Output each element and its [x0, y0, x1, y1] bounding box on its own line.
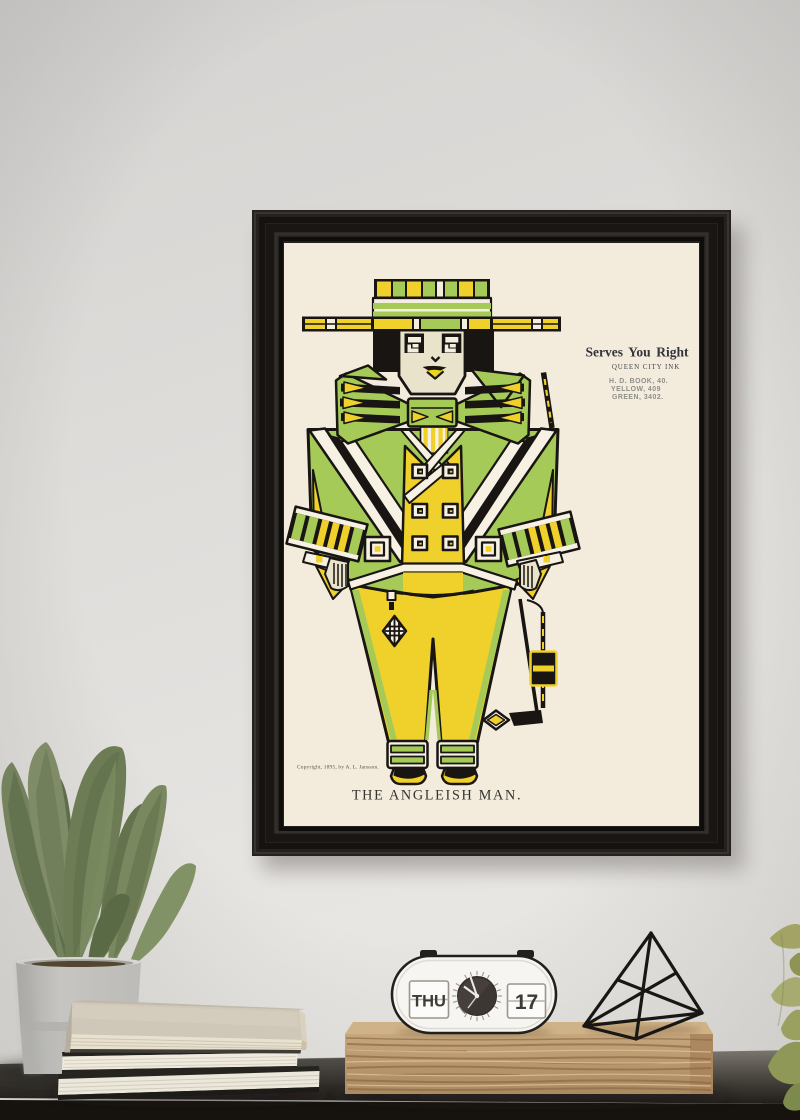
svg-text:H. D. BOOK, 40.: H. D. BOOK, 40. — [609, 378, 668, 385]
svg-text:Copyright, 1895, by A. L. Jans: Copyright, 1895, by A. L. Jansson. — [297, 765, 379, 771]
svg-text:17: 17 — [515, 991, 538, 1014]
svg-text:Serves You Right: Serves You Right — [586, 345, 689, 360]
svg-text:THE ANGLEISH MAN.: THE ANGLEISH MAN. — [352, 788, 522, 804]
svg-text:GREEN, 3402.: GREEN, 3402. — [612, 394, 664, 401]
svg-text:YELLOW, 409: YELLOW, 409 — [611, 386, 661, 393]
svg-text:QUEEN CITY INK: QUEEN CITY INK — [612, 363, 680, 371]
svg-text:THU: THU — [412, 993, 446, 1011]
